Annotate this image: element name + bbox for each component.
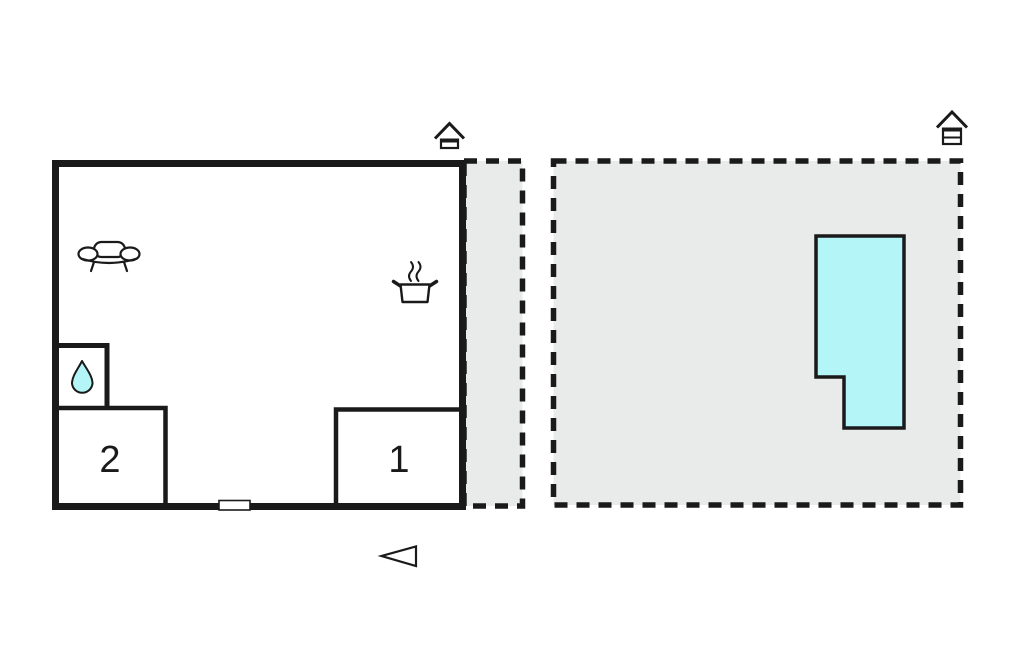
- terrace-strip: [464, 161, 523, 506]
- house-marker-icon: [937, 112, 967, 144]
- door-marker: [219, 501, 250, 511]
- floorplan-canvas: 2 1: [0, 0, 1024, 652]
- entrance-arrow-icon: [382, 547, 417, 567]
- floorplan-drawing: 2 1: [0, 0, 1024, 652]
- house-marker-icon: [435, 124, 464, 149]
- room-2-label: 2: [99, 439, 120, 481]
- room-1-label: 1: [388, 439, 409, 481]
